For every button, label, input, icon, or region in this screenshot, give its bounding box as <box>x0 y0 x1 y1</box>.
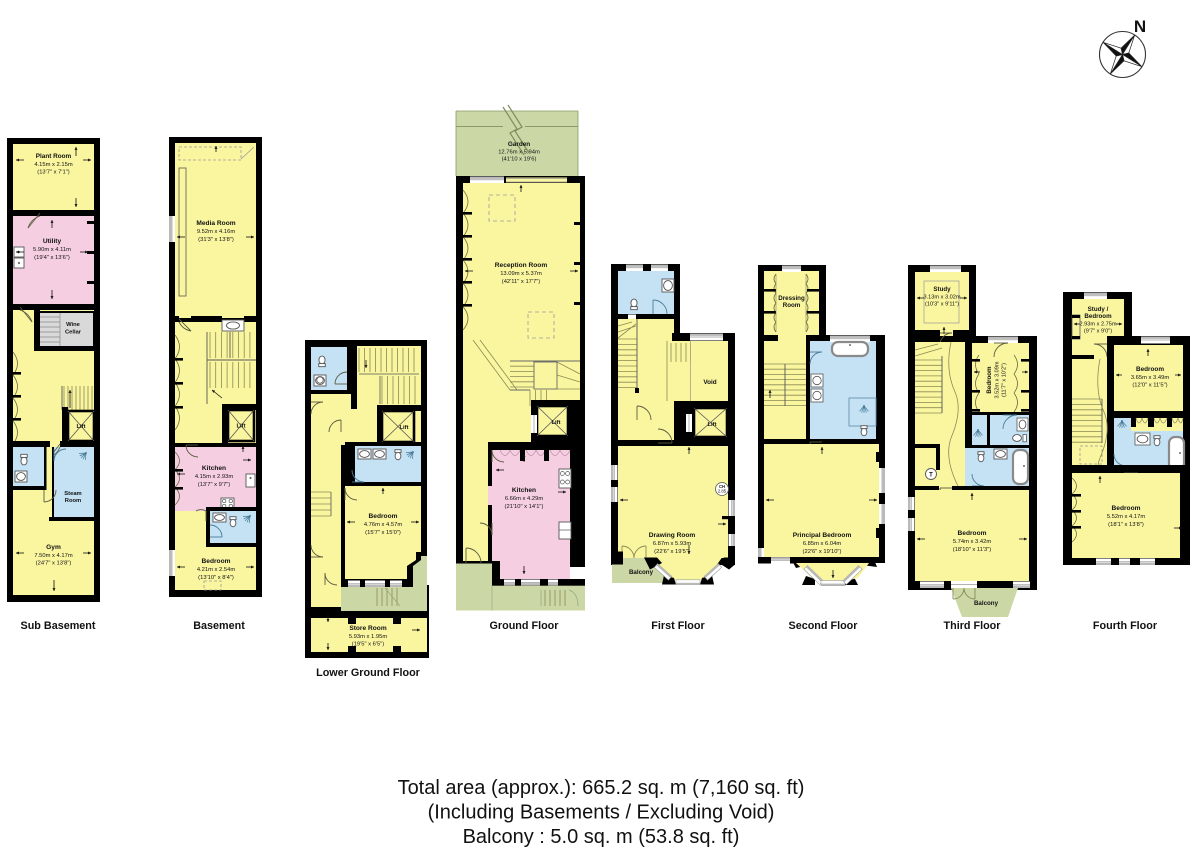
svg-text:3.13m x 3.02m: 3.13m x 3.02m <box>924 295 961 301</box>
svg-text:(22'6" x 19'10"): (22'6" x 19'10") <box>803 549 842 555</box>
svg-text:4.15m x 2.15m: 4.15m x 2.15m <box>34 162 73 168</box>
svg-text:Kitchen: Kitchen <box>202 465 226 472</box>
svg-text:(18'1" x 13'8"): (18'1" x 13'8") <box>1108 522 1144 528</box>
svg-text:Study: Study <box>933 286 951 293</box>
svg-text:(12'0" x 11'5"): (12'0" x 11'5") <box>1132 383 1167 389</box>
svg-text:Room: Room <box>65 498 81 504</box>
svg-text:(Including Basements / Excludi: (Including Basements / Excluding Void) <box>428 802 775 824</box>
svg-text:Sub Basement: Sub Basement <box>21 620 96 632</box>
svg-text:2.85: 2.85 <box>718 489 727 494</box>
svg-text:Lift: Lift <box>551 420 560 426</box>
svg-text:(22'6" x 19'5"): (22'6" x 19'5") <box>654 549 690 555</box>
svg-text:Bedroom: Bedroom <box>958 530 987 537</box>
svg-text:13.09m x 5.37m: 13.09m x 5.37m <box>500 271 542 277</box>
svg-text:(24'7" x 13'8"): (24'7" x 13'8") <box>36 561 72 567</box>
svg-text:5.52m x 4.17m: 5.52m x 4.17m <box>1107 514 1146 520</box>
svg-text:4.15m x 2.93m: 4.15m x 2.93m <box>195 474 234 480</box>
svg-text:Bedroom: Bedroom <box>202 558 231 565</box>
svg-text:Second Floor: Second Floor <box>789 620 859 632</box>
svg-text:(9'7" x 9'0"): (9'7" x 9'0") <box>1084 329 1112 335</box>
svg-text:7.50m x 4.17m: 7.50m x 4.17m <box>34 553 73 559</box>
svg-text:Store Room: Store Room <box>349 625 387 632</box>
svg-text:N: N <box>1134 17 1146 36</box>
svg-text:Third Floor: Third Floor <box>944 620 1002 632</box>
svg-text:Wine: Wine <box>66 322 81 328</box>
svg-text:(13'10" x 8'4"): (13'10" x 8'4") <box>198 575 234 581</box>
svg-text:Lower Ground Floor: Lower Ground Floor <box>316 667 421 679</box>
svg-text:Bedroom: Bedroom <box>1084 313 1112 320</box>
svg-text:(42'11" x 17'7"): (42'11" x 17'7") <box>502 279 541 285</box>
svg-text:Media Room: Media Room <box>196 220 235 227</box>
svg-text:(15'7" x 15'0"): (15'7" x 15'0") <box>365 530 401 536</box>
svg-text:(13'7" x 7'1"): (13'7" x 7'1") <box>37 170 69 176</box>
svg-text:3.52m x 3.09m: 3.52m x 3.09m <box>995 361 1001 398</box>
svg-text:Plant Room: Plant Room <box>36 153 72 160</box>
svg-text:6.66m x 4.29m: 6.66m x 4.29m <box>505 496 544 502</box>
svg-text:(19'5" x 6'5"): (19'5" x 6'5") <box>352 642 384 648</box>
svg-text:Kitchen: Kitchen <box>512 487 536 494</box>
svg-text:4.76m x 4.57m: 4.76m x 4.57m <box>364 522 403 528</box>
svg-text:Steam: Steam <box>64 491 81 497</box>
svg-text:Lift: Lift <box>707 422 716 428</box>
svg-text:(19'4" x 13'6"): (19'4" x 13'6") <box>34 255 70 261</box>
svg-text:12.76m x 5.94m: 12.76m x 5.94m <box>498 150 540 156</box>
svg-text:Utility: Utility <box>43 238 62 245</box>
svg-text:Drawing Room: Drawing Room <box>649 532 696 539</box>
svg-text:Total area (approx.): 665.2 sq: Total area (approx.): 665.2 sq. m (7,160… <box>398 777 805 799</box>
svg-text:Gym: Gym <box>46 544 61 551</box>
svg-text:(21'10" x 14'1"): (21'10" x 14'1") <box>505 504 544 510</box>
svg-text:Ground Floor: Ground Floor <box>490 620 560 632</box>
svg-text:Balcony : 5.0 sq. m (53.8 sq.: Balcony : 5.0 sq. m (53.8 sq. ft) <box>463 826 740 848</box>
svg-text:Void: Void <box>703 379 716 386</box>
svg-text:(13'7" x 9'7"): (13'7" x 9'7") <box>198 482 230 488</box>
svg-text:6.85m x 6.04m: 6.85m x 6.04m <box>803 541 842 547</box>
svg-text:6.87m x 5.93m: 6.87m x 5.93m <box>653 541 692 547</box>
svg-text:(31'3" x 13'8"): (31'3" x 13'8") <box>198 237 234 243</box>
svg-text:Reception Room: Reception Room <box>495 262 548 269</box>
svg-text:3.65m x 3.49m: 3.65m x 3.49m <box>1131 375 1170 381</box>
svg-text:(18'10" x 11'3"): (18'10" x 11'3") <box>953 547 992 553</box>
svg-text:5.74m x 3.42m: 5.74m x 3.42m <box>953 539 992 545</box>
svg-text:9.52m x 4.16m: 9.52m x 4.16m <box>197 229 236 235</box>
svg-text:T: T <box>929 473 933 479</box>
svg-text:Lift: Lift <box>399 425 408 431</box>
svg-text:Bedroom: Bedroom <box>369 513 398 520</box>
svg-text:(41'10 x 19'6): (41'10 x 19'6) <box>502 157 537 163</box>
svg-text:5.93m x 1.95m: 5.93m x 1.95m <box>349 634 388 640</box>
svg-text:Bedroom: Bedroom <box>1112 505 1141 512</box>
svg-text:First Floor: First Floor <box>651 620 705 632</box>
svg-text:4.21m x 2.54m: 4.21m x 2.54m <box>197 567 236 573</box>
svg-text:Fourth Floor: Fourth Floor <box>1093 620 1158 632</box>
svg-text:Basement: Basement <box>193 620 245 632</box>
svg-text:(10'3" x 9'11"): (10'3" x 9'11") <box>925 302 959 308</box>
svg-text:Garden: Garden <box>508 141 530 148</box>
svg-text:5.90m x 4.11m: 5.90m x 4.11m <box>33 247 71 253</box>
svg-text:Room: Room <box>783 302 801 309</box>
svg-text:Lift: Lift <box>236 424 245 430</box>
svg-text:Balcony: Balcony <box>629 569 654 576</box>
svg-text:Bedroom: Bedroom <box>986 366 993 394</box>
svg-text:Balcony: Balcony <box>974 600 999 607</box>
svg-text:Cellar: Cellar <box>65 330 82 336</box>
svg-text:(11'7" x 10'2"): (11'7" x 10'2") <box>1002 363 1008 397</box>
svg-text:Bedroom: Bedroom <box>1136 366 1164 373</box>
svg-text:Dressing: Dressing <box>778 295 805 302</box>
svg-text:Principal Bedroom: Principal Bedroom <box>793 532 852 539</box>
svg-text:Lift: Lift <box>76 424 85 430</box>
svg-text:Study /: Study / <box>1088 306 1109 313</box>
svg-text:2.93m x 2.75m: 2.93m x 2.75m <box>1080 322 1117 328</box>
